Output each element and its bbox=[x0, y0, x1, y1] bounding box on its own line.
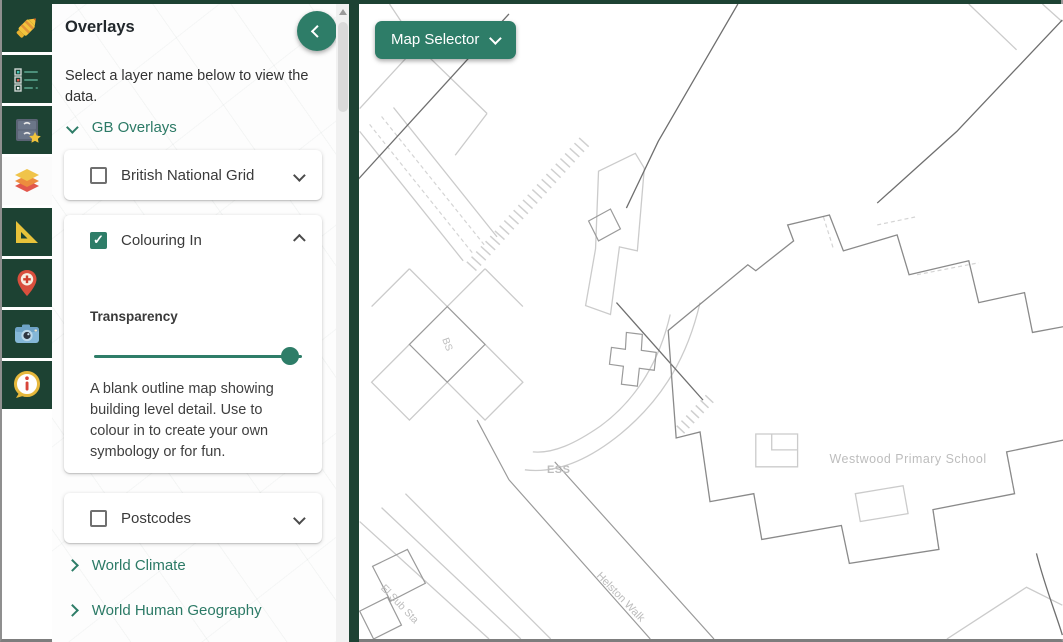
markers-pin-icon bbox=[11, 267, 43, 299]
tool-camera-button[interactable] bbox=[2, 310, 52, 358]
layer-checkbox[interactable] bbox=[90, 510, 107, 527]
group-label: World Human Geography bbox=[92, 602, 262, 619]
layer-label: Postcodes bbox=[121, 510, 289, 527]
overlays-panel: Overlays Select a layer name below to vi… bbox=[52, 4, 336, 642]
transparency-label: Transparency bbox=[90, 309, 178, 324]
tool-overlays-button[interactable] bbox=[2, 157, 52, 205]
panel-title: Overlays bbox=[65, 18, 135, 37]
tool-info-button[interactable] bbox=[2, 361, 52, 409]
map-area: Westwood Primary School ESS Helston Walk… bbox=[359, 4, 1063, 639]
tool-crayon-button[interactable] bbox=[2, 4, 52, 52]
map-label-bs: BS bbox=[439, 336, 454, 353]
group-label: World Climate bbox=[92, 557, 186, 574]
saved-maps-icon bbox=[11, 114, 43, 146]
group-world-climate[interactable]: World Climate bbox=[68, 557, 186, 574]
tool-measure-button[interactable] bbox=[2, 208, 52, 256]
layer-checkbox[interactable] bbox=[90, 167, 107, 184]
transparency-slider[interactable] bbox=[94, 347, 302, 365]
map-selector-label: Map Selector bbox=[391, 31, 479, 48]
tool-strip bbox=[2, 4, 52, 412]
scrollbar-thumb[interactable] bbox=[338, 22, 348, 112]
app-window: Overlays Select a layer name below to vi… bbox=[0, 0, 1063, 642]
tool-saved-maps-button[interactable] bbox=[2, 106, 52, 154]
map-selector-button[interactable]: Map Selector bbox=[375, 21, 516, 59]
measure-set-square-icon bbox=[11, 216, 43, 248]
collapse-panel-button[interactable] bbox=[297, 11, 337, 51]
chevron-right-icon bbox=[66, 559, 78, 571]
layer-description: A blank outline map showing building lev… bbox=[90, 379, 302, 463]
chevron-down-icon bbox=[490, 32, 502, 44]
layer-card-header[interactable]: British National Grid bbox=[64, 150, 322, 200]
info-icon bbox=[11, 369, 43, 401]
tool-legend-button[interactable] bbox=[2, 55, 52, 103]
layer-label: British National Grid bbox=[121, 167, 289, 184]
scroll-up-arrow-icon[interactable] bbox=[339, 9, 347, 15]
sidebar-scrollbar[interactable] bbox=[336, 4, 349, 642]
slider-thumb[interactable] bbox=[281, 347, 299, 365]
chevron-right-icon bbox=[66, 604, 78, 616]
crayon-icon bbox=[11, 12, 43, 44]
layer-card-header[interactable]: Postcodes bbox=[64, 493, 322, 543]
chevron-down-icon bbox=[66, 121, 78, 133]
group-world-human-geography[interactable]: World Human Geography bbox=[68, 602, 262, 619]
school-building-outline bbox=[668, 215, 1063, 563]
chevron-down-icon bbox=[293, 512, 305, 524]
layer-card-colouring-in: ✓ Colouring In Transparency A blank outl… bbox=[64, 215, 322, 473]
layer-card-postcodes: Postcodes bbox=[64, 493, 322, 543]
layer-card-british-national-grid: British National Grid bbox=[64, 150, 322, 200]
map-label-school: Westwood Primary School bbox=[830, 452, 987, 466]
overlays-layers-icon bbox=[11, 165, 43, 197]
chevron-down-icon bbox=[293, 169, 305, 181]
group-label: GB Overlays bbox=[92, 119, 177, 136]
map-canvas[interactable]: Westwood Primary School ESS Helston Walk… bbox=[359, 4, 1063, 639]
panel-divider bbox=[349, 0, 359, 642]
group-gb-overlays[interactable]: GB Overlays bbox=[68, 119, 177, 136]
layer-card-header[interactable]: ✓ Colouring In bbox=[64, 215, 322, 265]
slider-track[interactable] bbox=[94, 355, 302, 358]
layer-label: Colouring In bbox=[121, 232, 289, 249]
tool-markers-button[interactable] bbox=[2, 259, 52, 307]
camera-icon bbox=[11, 318, 43, 350]
chevron-left-icon bbox=[311, 25, 323, 37]
chevron-up-icon bbox=[293, 234, 305, 246]
map-label-ess: ESS bbox=[547, 464, 570, 476]
layer-checkbox-checked[interactable]: ✓ bbox=[90, 232, 107, 249]
legend-list-icon bbox=[11, 63, 43, 95]
panel-description: Select a layer name below to view the da… bbox=[65, 66, 317, 107]
top-border bbox=[2, 0, 1061, 4]
map-label-helston-walk: Helston Walk bbox=[594, 570, 647, 625]
